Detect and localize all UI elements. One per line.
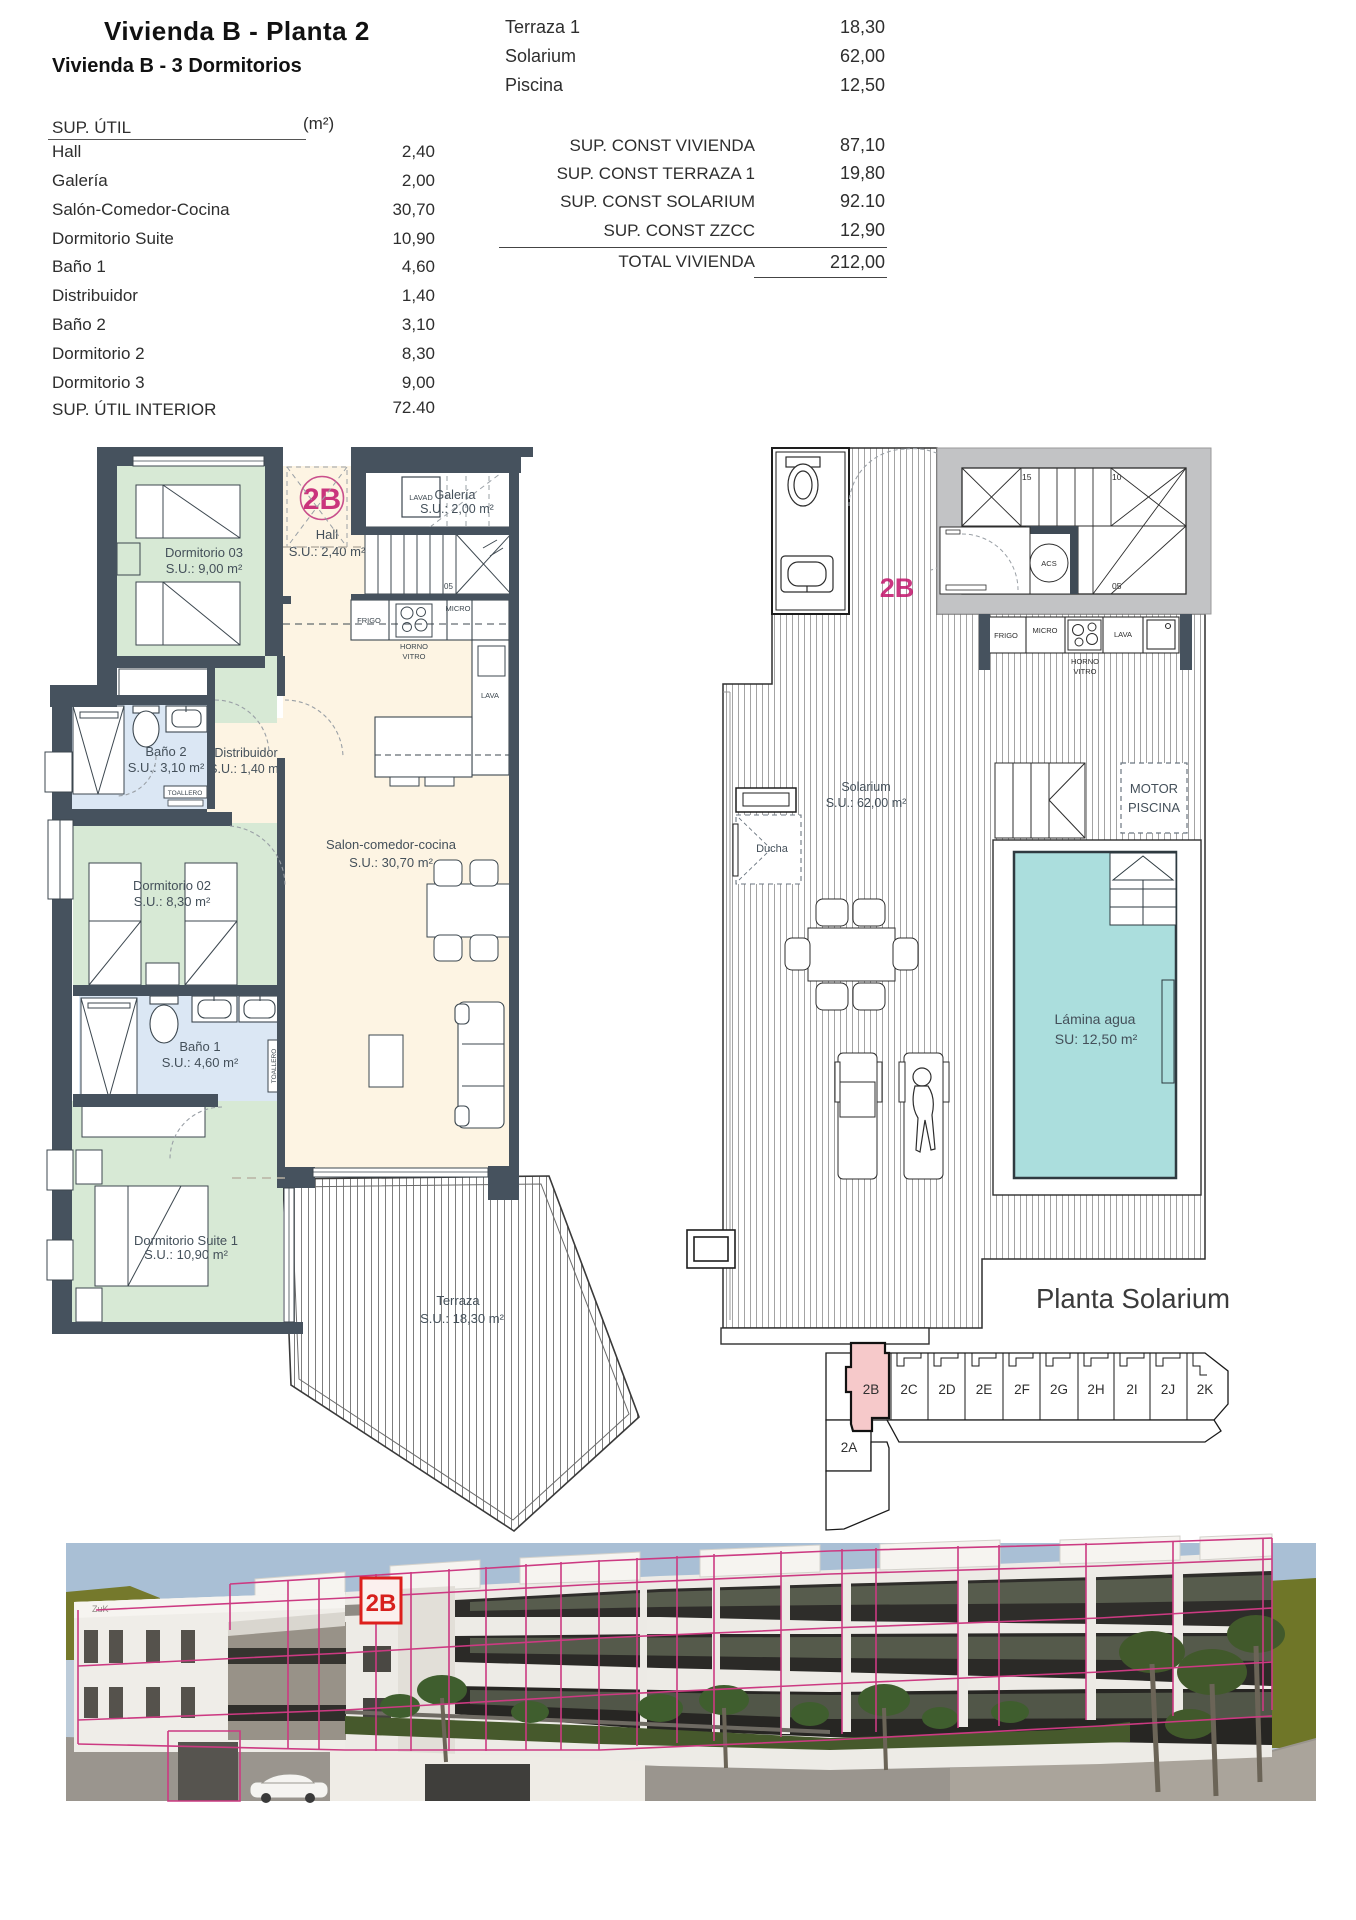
svg-text:SU: 12,50 m²: SU: 12,50 m² [1055,1031,1138,1047]
svg-text:S.U.: 3,10 m²: S.U.: 3,10 m² [128,760,205,775]
svg-text:Dormitorio Suite 1: Dormitorio Suite 1 [134,1233,238,1248]
svg-text:ACS: ACS [1041,559,1056,568]
svg-text:Dormitorio 03: Dormitorio 03 [165,545,243,560]
svg-text:2F: 2F [1014,1382,1030,1397]
svg-text:Lámina agua: Lámina agua [1055,1011,1136,1027]
svg-text:2K: 2K [1197,1382,1214,1397]
svg-text:S.U.: 2,00 m²: S.U.: 2,00 m² [420,502,494,516]
svg-text:S.U.: 10,90 m²: S.U.: 10,90 m² [144,1247,228,1262]
svg-text:Baño 2: Baño 2 [145,744,186,759]
svg-text:Hall: Hall [316,527,339,542]
svg-text:2I: 2I [1126,1382,1137,1397]
svg-text:Planta Solarium: Planta Solarium [1036,1283,1230,1314]
svg-text:Salon-comedor-cocina: Salon-comedor-cocina [326,837,457,852]
svg-text:S.U.: 62,00 m²: S.U.: 62,00 m² [826,796,907,810]
svg-text:S.U.: 2,40 m²: S.U.: 2,40 m² [289,544,366,559]
svg-text:LAVA: LAVA [481,691,499,700]
svg-text:MICRO: MICRO [446,604,471,613]
svg-text:S.U.: 1,40 m²: S.U.: 1,40 m² [209,762,283,776]
svg-text:S.U.: 4,60 m²: S.U.: 4,60 m² [162,1055,239,1070]
svg-text:HORNO: HORNO [1071,657,1099,666]
svg-text:05: 05 [1112,581,1122,591]
svg-text:MOTOR: MOTOR [1130,781,1178,796]
svg-text:FRIGO: FRIGO [357,616,381,625]
svg-text:2E: 2E [976,1382,993,1397]
svg-text:LAVAD: LAVAD [409,493,433,502]
svg-text:05: 05 [444,582,453,591]
svg-text:2B: 2B [366,1590,397,1617]
svg-text:2G: 2G [1050,1382,1068,1397]
svg-text:HORNO: HORNO [400,642,428,651]
svg-text:10: 10 [1112,472,1122,482]
svg-text:FRIGO: FRIGO [994,631,1018,640]
svg-text:2B: 2B [880,573,915,603]
svg-text:Terraza: Terraza [436,1293,480,1308]
svg-text:Solarium: Solarium [841,780,890,794]
svg-text:2A: 2A [841,1440,858,1455]
svg-text:LAVA: LAVA [1114,630,1132,639]
svg-text:2D: 2D [938,1382,956,1397]
svg-text:Baño 1: Baño 1 [179,1039,220,1054]
svg-text:2C: 2C [900,1382,918,1397]
svg-text:2B: 2B [863,1382,880,1397]
svg-text:Dormitorio 02: Dormitorio 02 [133,878,211,893]
svg-text:TOALLERO: TOALLERO [168,790,203,797]
svg-text:MICRO: MICRO [1033,626,1058,635]
svg-text:S.U.: 8,30 m²: S.U.: 8,30 m² [134,894,211,909]
svg-text:S.U.: 30,70 m²: S.U.: 30,70 m² [349,855,433,870]
svg-text:Ducha: Ducha [756,843,789,855]
svg-text:VITRO: VITRO [1074,667,1097,676]
svg-text:Galería: Galería [435,488,476,502]
svg-text:PISCINA: PISCINA [1128,800,1180,815]
svg-text:VITRO: VITRO [403,652,426,661]
svg-text:TOALLERO: TOALLERO [271,1049,278,1084]
svg-text:15: 15 [1022,472,1032,482]
svg-text:S.U.: 9,00 m²: S.U.: 9,00 m² [166,561,243,576]
svg-text:2J: 2J [1161,1382,1175,1397]
svg-text:2H: 2H [1087,1382,1104,1397]
svg-text:S.U.: 18,30 m²: S.U.: 18,30 m² [420,1311,504,1326]
